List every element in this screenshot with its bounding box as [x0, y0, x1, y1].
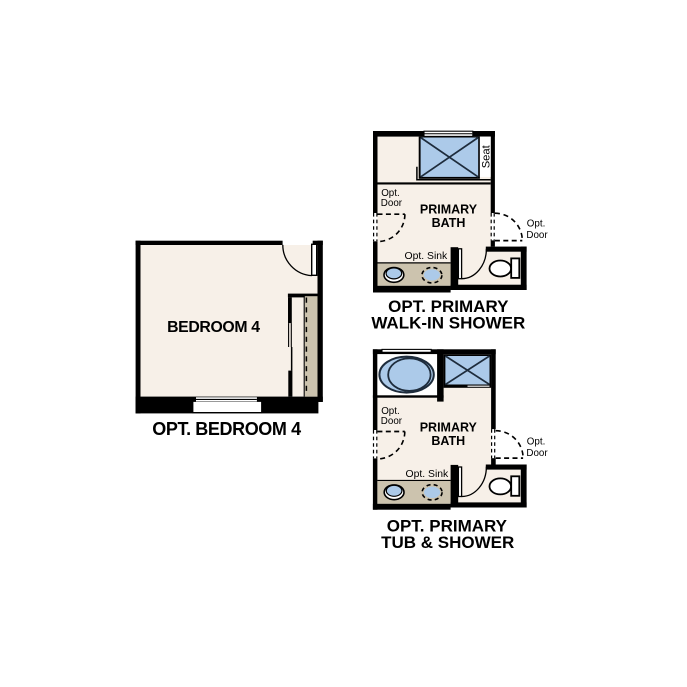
svg-text:BATH: BATH	[431, 434, 465, 448]
svg-text:TUB & SHOWER: TUB & SHOWER	[381, 533, 514, 552]
svg-text:Door: Door	[526, 448, 548, 459]
svg-text:Opt.: Opt.	[527, 437, 546, 448]
svg-text:Door: Door	[526, 230, 548, 241]
svg-text:PRIMARY: PRIMARY	[420, 420, 478, 434]
svg-text:Seat: Seat	[480, 144, 492, 168]
svg-text:Opt. Sink: Opt. Sink	[405, 251, 449, 262]
svg-text:Door: Door	[381, 416, 403, 427]
svg-text:BATH: BATH	[432, 216, 466, 230]
svg-text:BEDROOM 4: BEDROOM 4	[167, 319, 260, 336]
svg-text:Door: Door	[381, 198, 403, 209]
svg-text:Opt.: Opt.	[527, 219, 546, 230]
svg-text:WALK-IN SHOWER: WALK-IN SHOWER	[371, 314, 525, 333]
svg-text:PRIMARY: PRIMARY	[420, 202, 478, 216]
svg-text:OPT. BEDROOM 4: OPT. BEDROOM 4	[152, 419, 301, 439]
svg-text:Opt. Sink: Opt. Sink	[406, 469, 450, 480]
